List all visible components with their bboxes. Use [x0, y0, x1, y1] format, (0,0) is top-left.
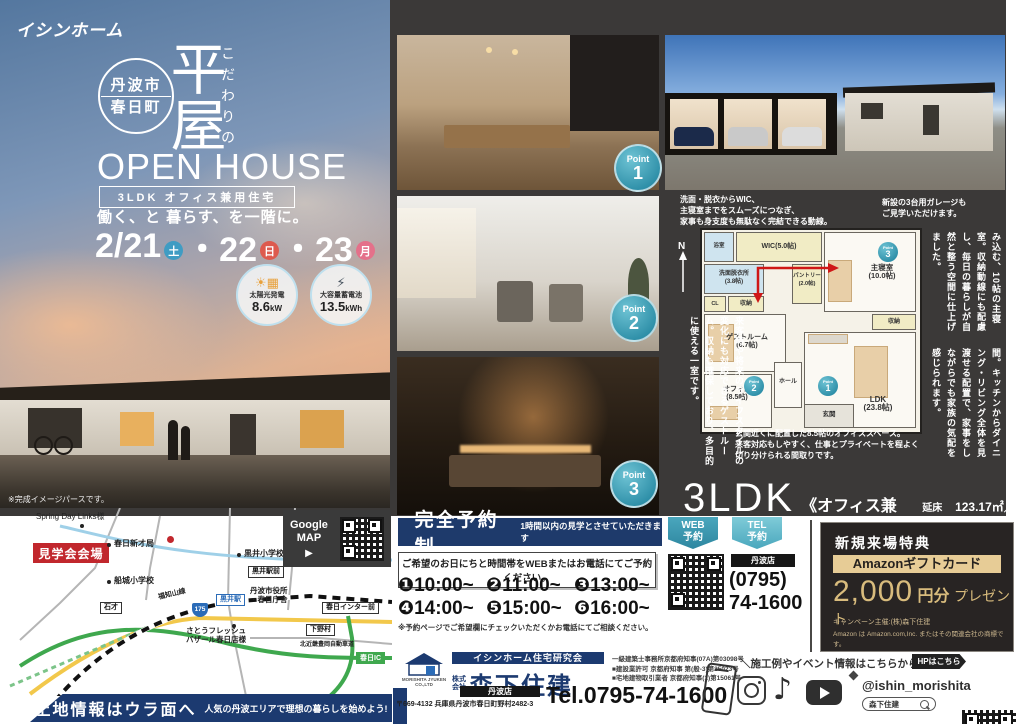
map-dot: [237, 553, 241, 557]
point-2-badge: Point 2: [610, 294, 658, 342]
map-kasuga-inter: 春日インター前: [322, 602, 379, 614]
prize-amount: 2,000: [833, 575, 913, 608]
map-kasuga-ic: 春日IC: [356, 652, 385, 664]
house-door: [230, 414, 256, 456]
map-dot: [80, 524, 84, 528]
hp-tag: HPはこちら: [912, 654, 966, 669]
battery-icon: ⚡: [336, 276, 345, 289]
facade-window: [861, 103, 883, 119]
tel-reservation-ribbon: TEL 予約: [732, 517, 782, 549]
slot-5: ❺15:00~: [486, 597, 574, 620]
dow-sat: 土: [164, 241, 183, 260]
google-map-qr-icon: [340, 517, 384, 561]
map-ishisai: 石才: [100, 602, 122, 614]
bicycle-wheel: [54, 436, 73, 455]
car-silver: [728, 127, 768, 146]
sns-header: ＼施工例やイベント情報はこちらから／: [740, 656, 929, 671]
flyer: イシンホーム 丹波市 春日町 こだわりの 平屋 OPEN HOUSE 3LDK …: [0, 0, 1024, 724]
render-disclaimer: ※完成イメージパースです。: [8, 494, 109, 505]
house-lit-window: [120, 412, 154, 446]
house-roof-silhouette: [0, 368, 390, 404]
phone-area-code: (0795): [729, 568, 787, 592]
prize-unit: 円分: [918, 588, 950, 605]
location-town: 春日町: [110, 99, 161, 116]
smartphone-hand-icon: [701, 662, 738, 716]
dow-sun: 日: [260, 241, 279, 260]
store-badge: 丹波店: [731, 554, 795, 567]
solar-badge: ☀▦ 太陽光発電 8.6kW: [236, 264, 298, 326]
exterior-garage-photo: [665, 35, 1005, 190]
chair: [497, 281, 534, 321]
instagram-icon: [737, 676, 766, 705]
point-1-badge: Point 1: [614, 144, 662, 192]
hp-qr-icon: [962, 710, 1016, 724]
slot-3: ❸13:00~: [574, 574, 662, 597]
solar-value: 8.6kW: [252, 300, 282, 315]
phone-number: 74-1600: [729, 592, 802, 615]
company-tel: Tel.0795-74-1600: [546, 682, 727, 709]
footer-store-badge: 丹波店: [460, 686, 540, 697]
bicycle-wheel: [34, 436, 53, 455]
pendant-lights: [486, 47, 492, 53]
venue-dot: [167, 536, 174, 543]
tiktok-icon: ♪: [773, 672, 792, 707]
divider: [101, 96, 171, 97]
house-lit-window: [300, 410, 344, 448]
chair: [549, 284, 583, 321]
banner-title: 土地情報はウラ面へ: [34, 696, 196, 720]
land-info-banner: 土地情報はウラ面へ 人気の丹波エリアで理想の暮らしを始めよう!: [30, 694, 392, 722]
reservation-qr-icon: [668, 554, 724, 610]
point-3-badge: Point 3: [610, 460, 658, 508]
brand-logo: イシンホーム: [16, 16, 124, 41]
annotation-office: 玄関近くに配置した8.5帖のオフィススペース。 来客対応もしやすく、仕事とプライ…: [735, 428, 935, 461]
trademark-note: Amazon は Amazon.com,Inc. またはその関連会社の商標です。: [833, 628, 1013, 648]
dining-table: [444, 125, 570, 148]
group-bar: イシンホーム住宅研究会: [452, 652, 604, 664]
google-map-box: Google MAP ▶: [283, 510, 391, 567]
map-expressway: 北近畿豊岡自動車道: [300, 641, 354, 650]
date-21: 2/21: [95, 227, 161, 266]
location-city: 丹波市: [110, 77, 161, 94]
map-spring-day-links: Spring Day Links様: [36, 512, 104, 521]
google-map-label: Google MAP: [290, 519, 328, 545]
campaign-note: キャンペーン主催:(株)森下住建: [833, 617, 930, 627]
reservation-note: 1時間以内の見学とさせていただきます: [520, 520, 662, 544]
visitor-benefit-panel: 新規来場特典 Amazonギフトカード 2,000 円分 プレゼント キャンペー…: [820, 522, 1014, 652]
eco-badges: ☀▦ 太陽光発電 8.6kW ⚡ 大容量蓄電池 13.5kWh: [236, 264, 372, 326]
youtube-icon: [806, 680, 842, 705]
slots-footnote: ※予約ページでご希望欄にチェックいただくかお電話にてご相談ください。: [398, 622, 653, 633]
bed: [449, 455, 601, 487]
compass-north-icon: N: [674, 238, 692, 296]
map-dot: [107, 580, 111, 584]
compass-n: N: [678, 241, 685, 252]
reservation-title: 完全予約制: [415, 505, 515, 559]
banner-subtitle: 人気の丹波エリアで理想の暮らしを始めよう!: [205, 702, 388, 715]
person-silhouette: [168, 420, 178, 460]
play-arrow-icon: ▶: [290, 548, 328, 559]
open-house-title: OPEN HOUSE: [97, 146, 347, 188]
company-logo-text: MORISHITA JYUKEN CO.,LTD: [394, 677, 454, 687]
slot-4: ❹14:00~: [398, 597, 486, 620]
map-shimonomura: 下野村: [306, 624, 335, 636]
map-sato-bazaar: さとうフレッシュ バザール春日店様: [186, 626, 246, 644]
slot-6: ❻16:00~: [574, 597, 662, 620]
name-prefix-top: 株式: [452, 676, 466, 684]
slot-1: ❶10:00~: [398, 574, 486, 597]
amazon-gift-card-bar: Amazonギフトカード: [833, 555, 1001, 573]
web-reservation-ribbon: WEB 予約: [668, 517, 718, 549]
map-funaki-elementary: 船城小学校: [114, 576, 154, 585]
house-facade: [845, 93, 993, 151]
facade-door: [923, 105, 939, 135]
map-venue-badge: 見学会会場: [33, 543, 109, 563]
map-kuroi-station-front: 黒井駅前: [248, 566, 284, 578]
reservation-header-bar: 完全予約制 1時間以内の見学とさせていただきます: [398, 518, 662, 546]
battery-badge: ⚡ 大容量蓄電池 13.5kWh: [310, 264, 372, 326]
license-1: 一級建築士事務所京都府知事(07A)第03098号: [612, 655, 744, 665]
time-slots: ❶10:00~ ❷11:00~ ❸13:00~ ❹14:00~ ❺15:00~ …: [398, 574, 668, 620]
battery-value: 13.5kWh: [320, 300, 362, 315]
hero-photo: イシンホーム 丹波市 春日町 こだわりの 平屋 OPEN HOUSE 3LDK …: [0, 0, 390, 508]
solar-panel-icon: ☀▦: [255, 276, 279, 289]
benefit-header: 新規来場特典: [835, 533, 931, 553]
map-kuroi-elementary: 黒井小学校: [244, 549, 284, 558]
map-city-office: 丹波市役所 ・春日庁舎: [250, 586, 288, 604]
section-divider: [810, 520, 812, 652]
sns-account: @ishin_morishita: [862, 678, 971, 693]
car-blue: [674, 127, 714, 146]
map-dot: [107, 543, 111, 547]
map-post-office: 春日新才局: [114, 539, 154, 548]
bed-light: [460, 445, 591, 453]
bright-window: [397, 208, 476, 298]
search-icon: [920, 700, 929, 709]
company-house-logo: [404, 652, 444, 676]
type-box: 3LDK オフィス兼用住宅: [99, 186, 295, 208]
garage-note-right: 新設の3台用ガレージも ご見学いただけます。: [882, 197, 1007, 219]
map-kuroi-station: 黒井駅: [216, 594, 245, 606]
kitchen-cabinet: [570, 35, 659, 131]
annotation-master-bedroom: 1日の疲れを優しく包み込む、10帖の主寝室。収納動線にも配慮し、毎日の暮らしが自…: [928, 232, 1018, 336]
dow-mon: 月: [356, 241, 375, 260]
annotation-ldk: 家族が集まるLDKは23.8帖のゆとりある空間。キッチンからダイニング・リビング…: [928, 348, 1024, 460]
car-white: [782, 127, 822, 146]
plan-type-title: 3LDK: [683, 476, 795, 521]
company-address: 〒669-4132 兵庫県丹波市春日町野村2482-3: [396, 699, 533, 709]
search-pill: 森下住建: [862, 697, 936, 711]
sparkle-icon: [849, 671, 859, 681]
slot-2: ❷11:00~: [486, 574, 574, 597]
garage-note-left: 洗面・脱衣からWIC、 主寝室までをスムーズにつなぎ、 家事も身支度も無駄なく完…: [680, 194, 865, 227]
search-pill-text: 森下住建: [869, 699, 899, 710]
person-silhouette: [181, 426, 190, 460]
